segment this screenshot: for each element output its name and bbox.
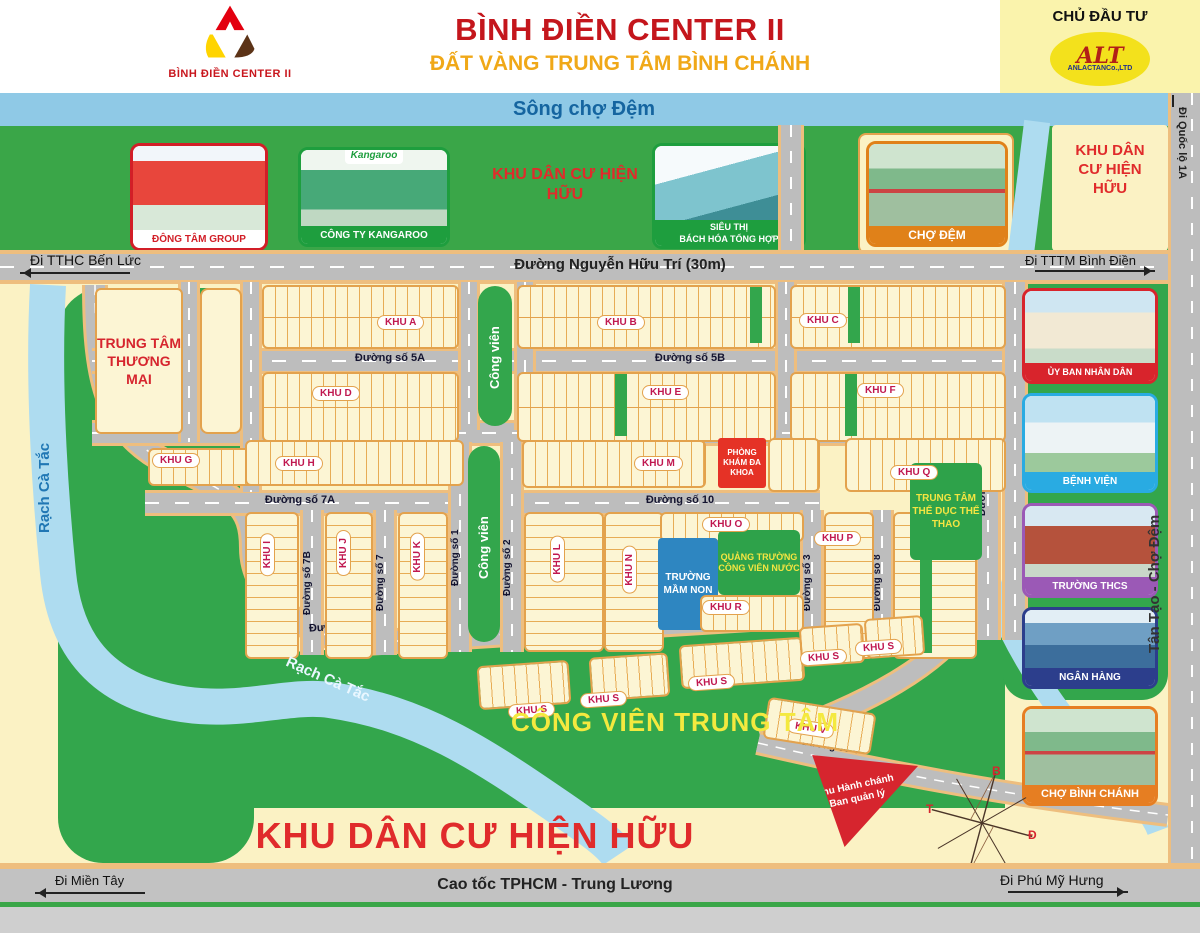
supermarket-caption-line2: BÁCH HÓA TỔNG HỢP: [679, 233, 778, 245]
tan-tao-cho-dem-label: Tân Tạo - Chợ Đệm: [1146, 453, 1163, 653]
central-park-label: CÔNG VIÊN TRUNG TÂM: [475, 707, 875, 738]
zone-k: KHU K: [410, 533, 425, 581]
dir-ben-luc: Đi TTHC Bến Lức: [30, 252, 141, 268]
cho-dem-photo: [869, 144, 1005, 226]
logo-caption: BÌNH ĐIỀN CENTER II: [150, 68, 310, 80]
lot-block-a: [262, 285, 459, 349]
kangaroo-sign: Kangaroo: [345, 150, 404, 164]
benh-vien-photo: [1025, 396, 1155, 472]
compass-north: B: [992, 764, 1001, 778]
lot-block-k: [398, 512, 448, 659]
lot-block-b: [517, 285, 776, 349]
highway-south-lane: [0, 907, 1200, 933]
dir-binh-dien: Đi TTTM Bình Điền: [1025, 253, 1136, 268]
existing-area-top-right: KHU DÂN CƯ HIỆN HỮU: [1075, 141, 1145, 198]
ngan-hang-photo: [1025, 610, 1155, 668]
zone-e: KHU E: [642, 385, 689, 400]
vroad-park1-left: [458, 282, 480, 430]
zone-d: KHU D: [312, 386, 360, 401]
zone-c: KHU C: [799, 313, 847, 328]
poster-subtitle: ĐẤT VÀNG TRUNG TÂM BÌNH CHÁNH: [360, 52, 880, 76]
water-square-block: QUẢNG TRƯỜNG CÔNG VIÊN NƯỚC: [718, 530, 800, 595]
lot-block-l: [524, 512, 604, 652]
street-7a: Đường số 7A: [240, 494, 360, 506]
arrow-phu-my-hung: [1008, 891, 1128, 893]
street-1: Đường số 1: [450, 498, 461, 618]
green-sliver-c: [848, 287, 860, 343]
benh-vien-caption: BỆNH VIỆN: [1025, 472, 1155, 490]
arrow-mien-tay: [35, 892, 145, 894]
developer-box: CHỦ ĐẦU TƯ ALT ANLACTANCo.,LTD: [1000, 0, 1200, 93]
truong-thcs-caption: TRƯỜNG THCS: [1025, 577, 1155, 595]
blank-plot: [200, 288, 242, 434]
zone-a: KHU A: [377, 315, 424, 330]
kangaroo-card: Kangaroo CÔNG TY KANGAROO: [298, 147, 450, 247]
zone-l: KHU L: [550, 536, 565, 583]
zone-o: KHU O: [702, 517, 750, 532]
park-strip-1-label: Công viên: [487, 308, 502, 408]
lot-block-clinic-east: [768, 438, 820, 492]
cho-dem-caption: CHỢ ĐỆM: [869, 226, 1005, 244]
trade-center-label: TRUNG TÂM THƯƠNG MẠI: [97, 334, 181, 388]
clinic-label: PHÒNG KHÁM ĐA KHOA: [718, 448, 766, 478]
highway-label: Cao tốc TPHCM - Trung Lương: [395, 876, 715, 894]
ngan-hang-card: NGÂN HÀNG: [1022, 607, 1158, 689]
lot-block-e: [517, 372, 776, 442]
developer-logo: ALT ANLACTANCo.,LTD: [1050, 32, 1150, 86]
ubnd-photo: [1025, 291, 1155, 363]
kangaroo-caption: CÔNG TY KANGAROO: [301, 226, 447, 244]
zone-n: KHU N: [622, 546, 637, 594]
compass-west: T: [926, 802, 934, 816]
water-square-label: QUẢNG TRƯỜNG CÔNG VIÊN NƯỚC: [718, 552, 800, 574]
trade-center-plot: TRUNG TÂM THƯƠNG MẠI: [95, 288, 183, 434]
truong-thcs-card: TRƯỜNG THCS: [1022, 503, 1158, 598]
compass-east: Đ: [1028, 828, 1037, 842]
clinic-block: PHÒNG KHÁM ĐA KHOA: [718, 438, 766, 488]
main-road-label: Đường Nguyễn Hữu Trí (30m): [420, 256, 820, 273]
street-5a: Đường số 5A: [330, 352, 450, 364]
masterplan-poster: BÌNH ĐIỀN CENTER II BÌNH ĐIỀN CENTER II …: [0, 0, 1200, 933]
zone-f: KHU F: [857, 383, 904, 398]
developer-company: ANLACTANCo.,LTD: [1068, 65, 1133, 72]
rach-ca-tac-label-west: Rạch Cà Tắc: [36, 403, 53, 533]
ngan-hang-caption: NGÂN HÀNG: [1025, 668, 1155, 686]
ubnd-caption: ỦY BAN NHÂN DÂN: [1025, 363, 1155, 381]
lane-dash: [1191, 93, 1193, 870]
project-logo: BÌNH ĐIỀN CENTER II: [150, 4, 310, 90]
zone-q: KHU Q: [890, 465, 938, 480]
zone-i: KHU I: [260, 533, 275, 576]
dong-tam-group-card: ĐÔNG TÂM GROUP: [130, 143, 268, 251]
benh-vien-card: BỆNH VIỆN: [1022, 393, 1158, 493]
site-map: Sông chợ Đệm ĐÔNG TÂM GROUP: [0, 93, 1200, 933]
top-road-stub: [778, 125, 804, 251]
kangaroo-photo: Kangaroo: [301, 150, 447, 226]
ubnd-card: ỦY BAN NHÂN DÂN: [1022, 288, 1158, 384]
lot-block-d: [262, 372, 459, 442]
zone-b: KHU B: [597, 315, 645, 330]
triangle-logo-icon: [194, 4, 266, 62]
zone-g: KHU G: [152, 453, 200, 468]
arrow-west: [20, 272, 130, 274]
dir-mien-tay: Đi Miền Tây: [55, 873, 124, 888]
street-5b: Đường số 5B: [630, 352, 750, 364]
street-10: Đường số 10: [620, 494, 740, 506]
green-sliver-e: [615, 374, 627, 436]
zone-j: KHU J: [336, 530, 351, 576]
park-strip-2-label: Công viên: [476, 493, 491, 603]
song-cho-dem-river: Sông chợ Đệm: [0, 93, 1168, 126]
street-2: Đường số 2: [502, 508, 513, 628]
green-sliver-f: [845, 374, 857, 436]
sports-center-label: TRUNG TÂM THỂ DỤC THỂ THAO: [910, 492, 982, 531]
arrow-north: [1172, 95, 1174, 107]
poster-title: BÌNH ĐIỀN CENTER II: [360, 12, 880, 48]
zone-m: KHU M: [634, 456, 683, 471]
arrow-east: [1035, 270, 1155, 272]
developer-logo-text: ALT: [1076, 47, 1123, 65]
cho-binh-chanh-photo: [1025, 709, 1155, 785]
existing-area-top: KHU DÂN CƯ HIỆN HỮU: [480, 165, 650, 205]
dir-quoc-lo-1a: Đi Quốc lộ 1A: [1176, 107, 1188, 227]
zone-p: KHU P: [814, 531, 861, 546]
dong-tam-caption: ĐÔNG TÂM GROUP: [133, 230, 265, 248]
supermarket-caption-line1: SIÊU THỊ: [710, 221, 748, 233]
river-label: Sông chợ Đệm: [513, 98, 655, 121]
green-sliver-b: [750, 287, 762, 343]
header: BÌNH ĐIỀN CENTER II BÌNH ĐIỀN CENTER II …: [0, 0, 1000, 93]
dong-tam-photo: [133, 146, 265, 230]
cho-dem-card: CHỢ ĐỆM: [866, 141, 1008, 247]
kindergarten-label: TRƯỜNG MẦM NON: [658, 571, 718, 597]
dir-phu-my-hung: Đi Phú Mỹ Hưng: [1000, 872, 1104, 888]
zone-r: KHU R: [702, 600, 750, 615]
zone-h: KHU H: [275, 456, 323, 471]
developer-label: CHỦ ĐẦU TƯ: [1000, 8, 1200, 25]
truong-thcs-photo: [1025, 506, 1155, 577]
cho-binh-chanh-caption: CHỢ BÌNH CHÁNH: [1025, 785, 1155, 803]
existing-area-bottom: KHU DÂN CƯ HIỆN HỮU: [175, 815, 775, 857]
